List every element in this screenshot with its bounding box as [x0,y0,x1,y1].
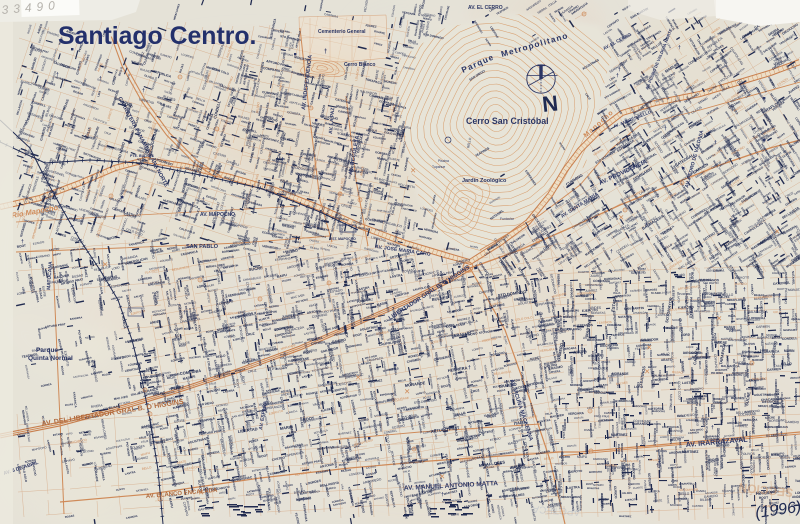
svg-text:†: † [731,328,734,334]
svg-text:†: † [302,245,305,251]
svg-text:CARRERA: CARRERA [647,305,659,308]
svg-text:CURICO: CURICO [640,339,650,342]
svg-text:✕: ✕ [102,260,108,269]
svg-text:†: † [610,249,613,255]
svg-text:†: † [645,223,648,229]
svg-text:MAC IVER: MAC IVER [720,455,724,468]
svg-text:ROOT: ROOT [586,482,594,486]
svg-text:VERGARA: VERGARA [746,318,760,322]
svg-text:✕: ✕ [404,387,410,396]
svg-text:✕: ✕ [618,213,624,222]
svg-text:ITALIA: ITALIA [613,292,621,295]
svg-text:LORD: LORD [681,333,691,337]
svg-text:DARDIGNAC: DARDIGNAC [728,338,748,342]
svg-text:VERGARA: VERGARA [790,376,800,380]
svg-text:†: † [468,365,471,371]
svg-text:LASTRA: LASTRA [574,350,588,354]
svg-text:SALVADOR: SALVADOR [608,336,613,351]
svg-text:CONDELL: CONDELL [782,336,798,341]
svg-text:VERGARA: VERGARA [743,418,758,422]
svg-text:CRUZ: CRUZ [781,356,784,363]
svg-text:ABATE: ABATE [625,328,634,331]
svg-text:ANDES: ANDES [601,360,611,364]
svg-text:ESTADO: ESTADO [772,293,775,303]
svg-text:†: † [623,408,626,414]
svg-text:MIRAFLORES: MIRAFLORES [561,495,580,499]
svg-text:BILBAO: BILBAO [672,370,684,375]
svg-text:†: † [183,310,186,316]
svg-text:†: † [281,157,284,163]
svg-text:DUARTE: DUARTE [664,340,675,344]
svg-text:ANDES: ANDES [668,484,677,487]
svg-text:HUERFANOS: HUERFANOS [621,427,637,431]
svg-text:MIRAFLORES: MIRAFLORES [758,404,777,408]
svg-text:SAN MARTIN: SAN MARTIN [703,282,719,285]
svg-text:SOTERO: SOTERO [567,470,572,483]
svg-text:COLO COLO: COLO COLO [642,343,645,358]
svg-text:LORD: LORD [671,479,678,483]
svg-text:†: † [302,497,305,503]
svg-text:MONEDA: MONEDA [703,300,715,304]
svg-text:PIO NONO: PIO NONO [713,461,717,476]
svg-text:AGUSTINAS: AGUSTINAS [794,388,798,405]
svg-text:COPIAPO: COPIAPO [771,452,785,456]
svg-text:ROOT: ROOT [690,272,694,281]
svg-text:MARTINEZ: MARTINEZ [669,394,673,410]
svg-text:DUARTE: DUARTE [624,283,628,294]
svg-text:VALDES: VALDES [793,454,800,458]
svg-text:AV. EL CERRO: AV. EL CERRO [468,5,503,11]
svg-text:✕: ✕ [774,227,780,236]
svg-text:✕: ✕ [644,367,650,376]
svg-text:LIRA: LIRA [587,406,594,410]
svg-text:PIO NONO: PIO NONO [690,386,704,391]
svg-text:ROJAS: ROJAS [670,352,674,363]
svg-text:BILBAO: BILBAO [700,498,712,502]
svg-text:ROSAS: ROSAS [687,401,698,405]
svg-text:ANDES: ANDES [772,359,775,368]
svg-text:†: † [177,406,180,412]
svg-text:†: † [142,88,145,94]
svg-text:MONJITAS: MONJITAS [587,487,600,490]
svg-text:PIO NONO: PIO NONO [711,372,723,375]
svg-text:†: † [488,451,491,457]
svg-text:ROOT: ROOT [694,322,698,330]
svg-text:ANTONIA: ANTONIA [686,500,690,512]
svg-text:MAPOCHO: MAPOCHO [779,322,783,336]
svg-text:ANDES: ANDES [590,306,601,310]
svg-text:✕: ✕ [355,373,361,382]
svg-text:ROJAS: ROJAS [758,464,761,473]
svg-text:MIRAFLORES: MIRAFLORES [719,400,724,421]
svg-text:SEMINARIO: SEMINARIO [664,280,668,295]
svg-text:†: † [656,463,659,469]
svg-text:†: † [202,197,205,203]
svg-text:SAN MARTIN: SAN MARTIN [620,459,639,463]
svg-text:SUCRE: SUCRE [654,493,658,503]
svg-text:✕: ✕ [716,314,722,323]
svg-text:Tupahue: Tupahue [432,165,445,169]
svg-text:SAN MARTIN: SAN MARTIN [748,431,752,448]
svg-text:AMUNATEGUI: AMUNATEGUI [690,367,694,385]
svg-text:Piscina: Piscina [438,159,449,163]
svg-text:†: † [56,72,59,78]
svg-text:BULNES: BULNES [617,444,620,455]
svg-text:CURICO: CURICO [786,353,791,366]
svg-text:JUAREZ: JUAREZ [669,381,679,385]
svg-text:CAUPOLICAN: CAUPOLICAN [629,270,645,273]
svg-text:CONDELL: CONDELL [598,417,601,429]
svg-text:MARURI: MARURI [696,297,700,310]
svg-text:Jardín Zoológico: Jardín Zoológico [462,178,507,184]
svg-text:Parque: Parque [36,347,58,354]
svg-text:†: † [441,492,444,498]
svg-text:MONJITAS: MONJITAS [620,443,624,458]
svg-text:DIECIOCHO: DIECIOCHO [726,373,743,377]
svg-text:OLIVOS: OLIVOS [754,307,764,310]
svg-text:SIERRA: SIERRA [784,274,789,286]
svg-text:MONEDA: MONEDA [615,398,627,403]
svg-text:BELLO: BELLO [670,437,679,442]
svg-text:†: † [445,401,448,407]
svg-text:ROJAS: ROJAS [650,380,654,389]
svg-text:DUARTE: DUARTE [578,270,589,274]
svg-text:COLO COLO: COLO COLO [566,299,570,317]
svg-text:MORANDE: MORANDE [650,402,653,415]
svg-text:Santiago Centro.: Santiago Centro. [58,23,256,50]
svg-text:GAMERO: GAMERO [785,420,800,424]
svg-text:ERASMO: ERASMO [658,370,662,383]
svg-text:†: † [324,49,327,55]
svg-text:SAN DIEGO: SAN DIEGO [695,410,700,427]
svg-text:BULNES: BULNES [605,463,617,467]
svg-text:†: † [711,425,714,431]
svg-text:SUCRE: SUCRE [666,495,669,504]
svg-text:✕: ✕ [646,343,652,352]
svg-text:NATANIEL: NATANIEL [791,271,796,286]
svg-text:Cementerio General: Cementerio General [318,29,366,35]
svg-text:Funicular: Funicular [500,217,515,221]
svg-text:MONJITAS: MONJITAS [752,376,767,381]
svg-text:CARMEN: CARMEN [780,456,785,469]
svg-text:REPUBLICA: REPUBLICA [635,443,638,458]
svg-text:PURISIMA: PURISIMA [679,292,692,296]
svg-text:LOURDES: LOURDES [655,421,658,433]
svg-text:LIRA: LIRA [623,463,631,467]
svg-text:COMPANIA: COMPANIA [691,328,694,341]
svg-text:LIRA: LIRA [744,370,748,378]
svg-text:RIVERA: RIVERA [703,296,712,299]
svg-text:MORANDE: MORANDE [632,422,649,426]
svg-text:COLO COLO: COLO COLO [749,456,754,474]
svg-text:†: † [743,287,746,293]
svg-text:†: † [99,76,102,82]
svg-text:AV. MAPOCHO: AV. MAPOCHO [200,212,235,218]
svg-text:ROOT: ROOT [560,452,564,461]
svg-text:MONJITAS: MONJITAS [788,288,800,292]
svg-text:MORANDE: MORANDE [715,369,728,372]
svg-text:Cerro San Cristóbal: Cerro San Cristóbal [466,116,549,126]
svg-text:CRUZ: CRUZ [773,310,782,314]
svg-text:MAIPU: MAIPU [735,446,744,450]
svg-text:BELLO: BELLO [698,361,702,369]
svg-text:†: † [543,241,546,247]
svg-text:LIBERTAD: LIBERTAD [790,444,793,456]
svg-text:COLO COLO: COLO COLO [774,379,778,395]
svg-text:COLO COLO: COLO COLO [594,415,609,418]
svg-text:†: † [778,293,781,299]
svg-text:DUARTE: DUARTE [634,322,639,334]
svg-text:✕: ✕ [410,166,416,175]
svg-text:†: † [439,395,442,401]
svg-text:PIO NONO: PIO NONO [784,288,788,305]
svg-text:CRUZ: CRUZ [690,483,697,486]
svg-text:ESPERANZA: ESPERANZA [605,357,608,372]
svg-text:✕: ✕ [439,472,445,481]
svg-text:†: † [494,350,497,356]
svg-text:MARIN: MARIN [666,326,675,330]
svg-text:†: † [259,496,262,502]
svg-text:SEMINARIO: SEMINARIO [764,425,781,429]
svg-text:ROOT: ROOT [777,287,785,291]
svg-text:CASTRO: CASTRO [678,318,682,332]
svg-text:LORD: LORD [660,436,667,439]
svg-text:GALVEZ: GALVEZ [718,295,730,299]
svg-text:PEREZ: PEREZ [786,318,789,327]
svg-text:SIERRA: SIERRA [627,477,631,490]
svg-text:OLIVOS: OLIVOS [656,449,667,453]
svg-text:†: † [540,321,543,327]
svg-text:†: † [729,181,732,187]
svg-text:EST. MAPOCHO: EST. MAPOCHO [330,237,356,241]
svg-text:†: † [714,140,717,146]
svg-text:Quinta Normal: Quinta Normal [28,355,73,362]
svg-text:PTE. BULNES: PTE. BULNES [130,154,154,158]
svg-text:†: † [780,431,783,437]
svg-text:MAIPU: MAIPU [705,347,710,357]
svg-text:ROOT: ROOT [564,403,568,412]
svg-text:BILBAO: BILBAO [724,325,736,329]
svg-text:ITALIA: ITALIA [742,355,746,366]
svg-text:OLIVOS: OLIVOS [743,452,755,456]
svg-text:MAIPU: MAIPU [577,455,588,459]
svg-text:CONDELL: CONDELL [713,269,725,273]
svg-text:DARDIGNAC: DARDIGNAC [593,458,608,461]
svg-text:PEREZ: PEREZ [703,303,706,312]
svg-text:†: † [389,117,392,123]
svg-text:SOTOMAYOR: SOTOMAYOR [679,488,699,492]
svg-text:MAPOCHO: MAPOCHO [652,410,665,413]
svg-text:AHUMADA: AHUMADA [633,311,647,315]
svg-text:AHUMADA: AHUMADA [727,421,743,425]
svg-text:CURICO: CURICO [735,282,748,286]
svg-text:†: † [21,239,24,245]
svg-text:TARAPACA: TARAPACA [723,484,726,497]
svg-text:†: † [784,312,787,318]
svg-text:MAC IVER: MAC IVER [726,408,738,411]
svg-text:AGUSTINAS: AGUSTINAS [754,392,771,397]
svg-text:VALDES: VALDES [622,492,632,495]
svg-text:CATEDRAL: CATEDRAL [730,308,734,324]
svg-text:MARTINEZ: MARTINEZ [593,386,606,389]
svg-text:SOTERO: SOTERO [593,484,604,487]
svg-text:MARURI: MARURI [575,393,579,403]
svg-text:CARMEN: CARMEN [698,311,702,322]
svg-text:ARGOMEDO: ARGOMEDO [618,331,634,335]
svg-text:NATANIEL: NATANIEL [657,353,671,357]
svg-text:MARTINEZ: MARTINEZ [619,515,632,518]
svg-text:SAN PABLO: SAN PABLO [186,244,219,250]
svg-text:TARAPACA: TARAPACA [795,479,800,483]
svg-text:CURICO: CURICO [712,304,716,314]
svg-text:†: † [616,73,619,79]
svg-text:N: N [541,90,559,117]
svg-text:MAPOCHO: MAPOCHO [632,405,645,408]
svg-text:LORD: LORD [626,345,629,352]
svg-text:DARDIGNAC: DARDIGNAC [624,468,639,471]
svg-text:CRUZ: CRUZ [614,283,618,292]
svg-text:CASTRO: CASTRO [579,380,583,393]
svg-text:CURICO: CURICO [567,366,570,376]
svg-text:ESTADO: ESTADO [791,309,795,322]
svg-text:CARMEN: CARMEN [556,274,559,285]
svg-text:Cerro Blanco: Cerro Blanco [344,62,375,68]
svg-text:BORGONO: BORGONO [589,471,602,474]
svg-text:CURICO: CURICO [750,284,755,295]
svg-text:†: † [199,390,202,396]
svg-text:AGUSTINAS: AGUSTINAS [608,476,612,491]
svg-text:†: † [664,126,667,132]
svg-text:CARMEN: CARMEN [756,324,771,329]
svg-text:AMUNATEGUI: AMUNATEGUI [710,319,713,335]
svg-text:MONEDA: MONEDA [563,419,567,431]
svg-text:LASTRA: LASTRA [648,440,658,443]
svg-text:BELLO: BELLO [760,443,765,452]
svg-text:†: † [678,45,681,51]
svg-text:PIO NONO: PIO NONO [689,297,693,314]
svg-text:LORD: LORD [760,348,768,352]
svg-text:†: † [308,424,311,430]
svg-text:ANTONIA: ANTONIA [701,471,704,482]
svg-text:CRUZ: CRUZ [686,345,694,349]
svg-text:OLIVOS: OLIVOS [744,342,755,346]
svg-text:CARMEN: CARMEN [630,288,642,293]
svg-text:CONDELL: CONDELL [585,297,597,301]
svg-text:ABATE: ABATE [661,358,672,362]
svg-text:CASTRO: CASTRO [692,504,703,508]
svg-text:BANDERA: BANDERA [670,504,682,507]
